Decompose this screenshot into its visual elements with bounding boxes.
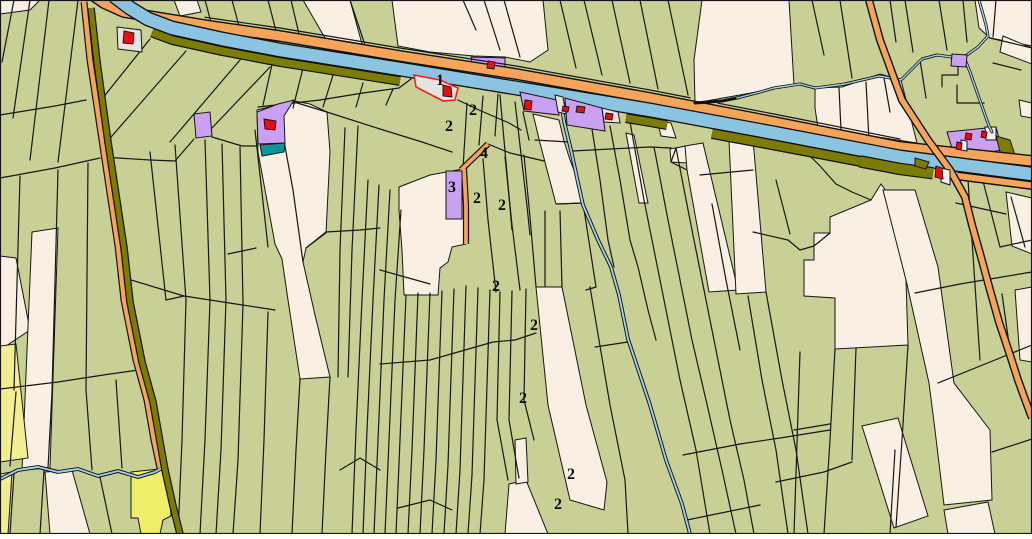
svg-text:2: 2 [492,278,500,295]
svg-text:2: 2 [530,317,538,334]
svg-text:2: 2 [473,190,481,207]
svg-text:2: 2 [567,466,575,483]
svg-text:3: 3 [448,179,456,196]
svg-text:2: 2 [469,102,477,119]
svg-text:2: 2 [498,197,506,214]
svg-text:2: 2 [445,118,453,135]
svg-text:4: 4 [480,145,488,162]
svg-text:2: 2 [519,390,527,407]
svg-text:1: 1 [436,72,444,89]
svg-text:2: 2 [554,496,562,513]
